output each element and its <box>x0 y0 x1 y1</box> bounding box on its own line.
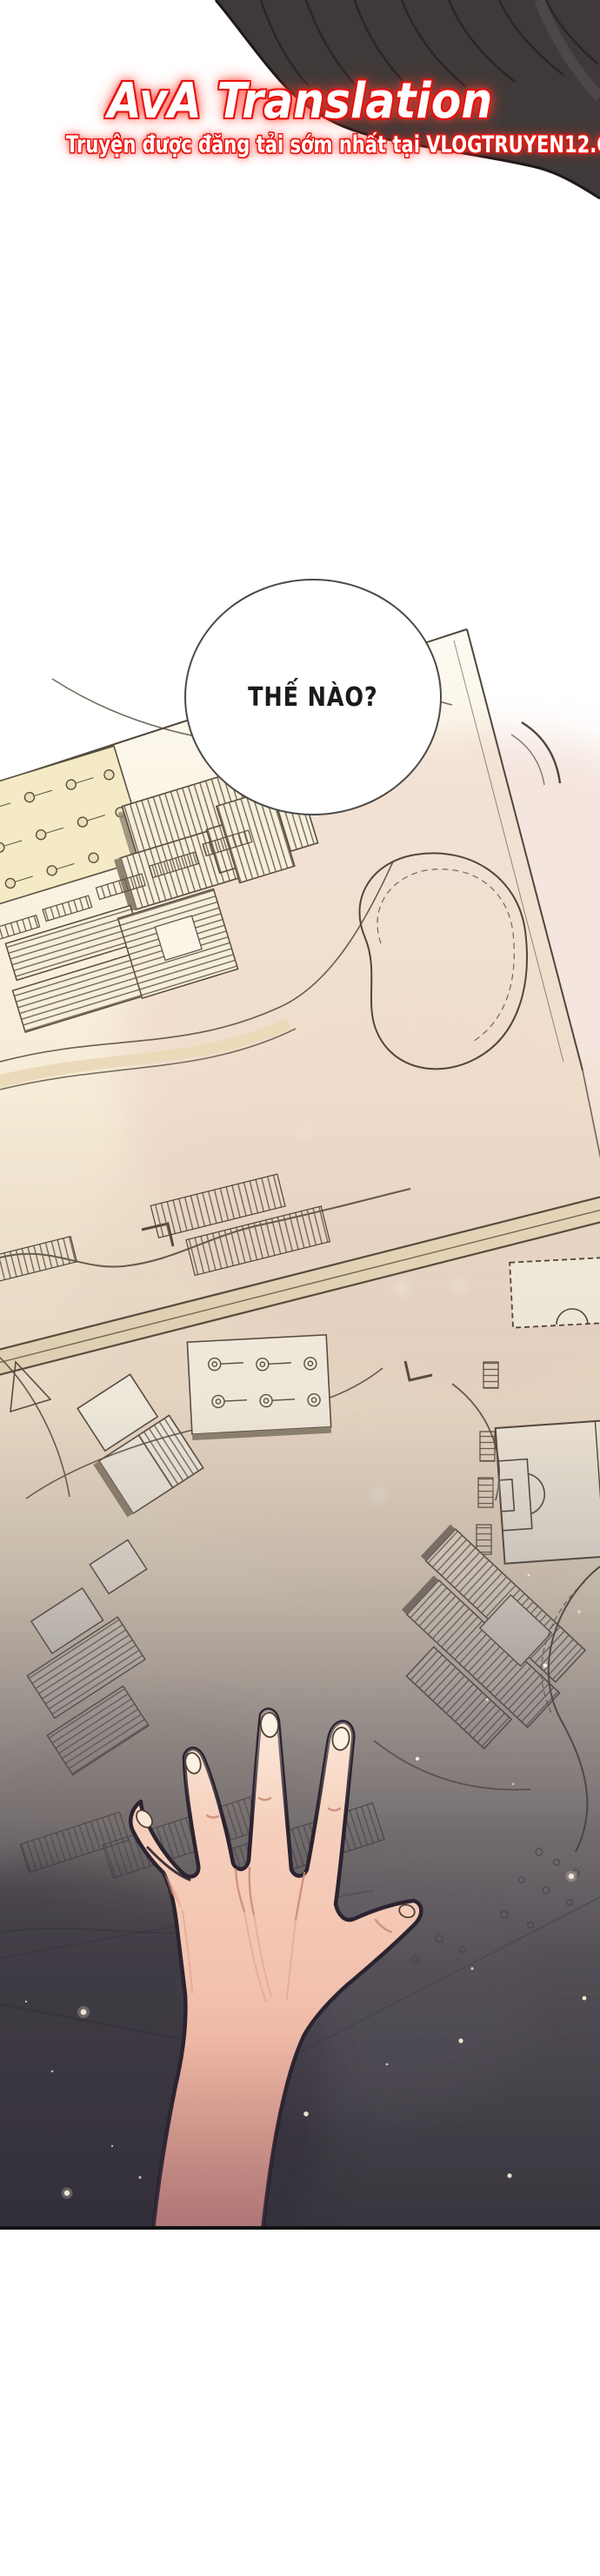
translator-header: AvA Translation Truyện được đăng tải sớm… <box>0 73 600 158</box>
footer-blank <box>0 2230 600 2576</box>
comic-panel: AvA Translation Truyện được đăng tải sớm… <box>0 0 600 2230</box>
translator-title: AvA Translation <box>30 73 570 130</box>
speech-bubble: THẾ NÀO? <box>184 579 442 815</box>
speech-bubble-text: THẾ NÀO? <box>248 682 377 713</box>
translator-subtitle: Truyện được đăng tải sớm nhất tại VLOGTR… <box>66 131 534 158</box>
reaching-hand <box>35 1687 452 2230</box>
webtoon-page: AvA Translation Truyện được đăng tải sớm… <box>0 0 600 2576</box>
